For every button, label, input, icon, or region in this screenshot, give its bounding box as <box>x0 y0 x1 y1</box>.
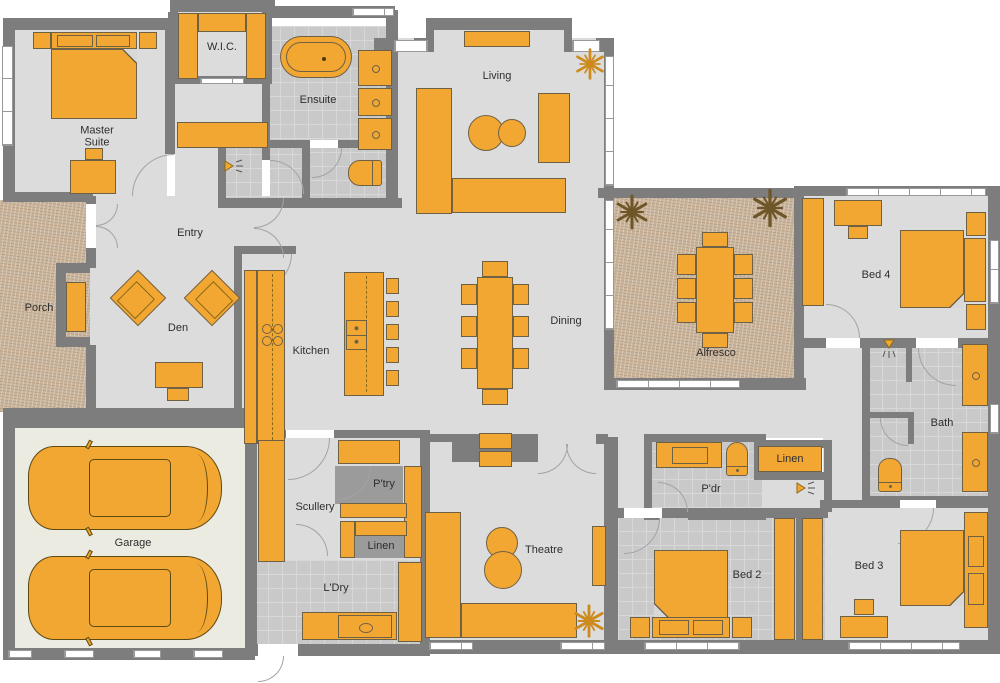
plant-icon <box>572 46 608 82</box>
room-label-den: Den <box>168 322 188 334</box>
room-label-wic: W.I.C. <box>207 41 237 53</box>
room-label-ensuite: Ensuite <box>300 94 337 106</box>
room-label-entry: Entry <box>177 227 203 239</box>
room-label-pdr: P'dr <box>701 483 720 495</box>
room-label-dining: Dining <box>550 315 581 327</box>
room-label-master: Master Suite <box>69 125 125 150</box>
room-label-pantry: P'try <box>373 478 395 490</box>
room-label-linen_scullery: Linen <box>368 540 395 552</box>
room-label-porch: Porch <box>25 302 54 314</box>
plant-icon <box>570 602 608 640</box>
room-label-bed2: Bed 2 <box>733 569 762 581</box>
room-label-kitchen: Kitchen <box>293 345 330 357</box>
room-label-linen_hall: Linen <box>777 453 804 465</box>
labels-layer: Master SuiteW.I.C.EnsuiteLivingEntryPorc… <box>0 0 1000 683</box>
light-icon <box>224 158 246 174</box>
plant-icon <box>748 186 792 230</box>
floor-plan: Master SuiteW.I.C.EnsuiteLivingEntryPorc… <box>0 0 1000 683</box>
room-label-bath: Bath <box>931 417 954 429</box>
light-icon <box>881 339 897 361</box>
room-label-bed3: Bed 3 <box>855 560 884 572</box>
room-label-garage: Garage <box>115 537 152 549</box>
light-icon <box>796 480 818 496</box>
room-label-alfresco: Alfresco <box>696 347 736 359</box>
room-label-scullery: Scullery <box>295 501 334 513</box>
plant-icon <box>612 192 652 232</box>
room-label-living: Living <box>483 70 512 82</box>
room-label-bed4: Bed 4 <box>862 269 891 281</box>
room-label-laundry: L'Dry <box>323 582 348 594</box>
room-label-theatre: Theatre <box>525 544 563 556</box>
